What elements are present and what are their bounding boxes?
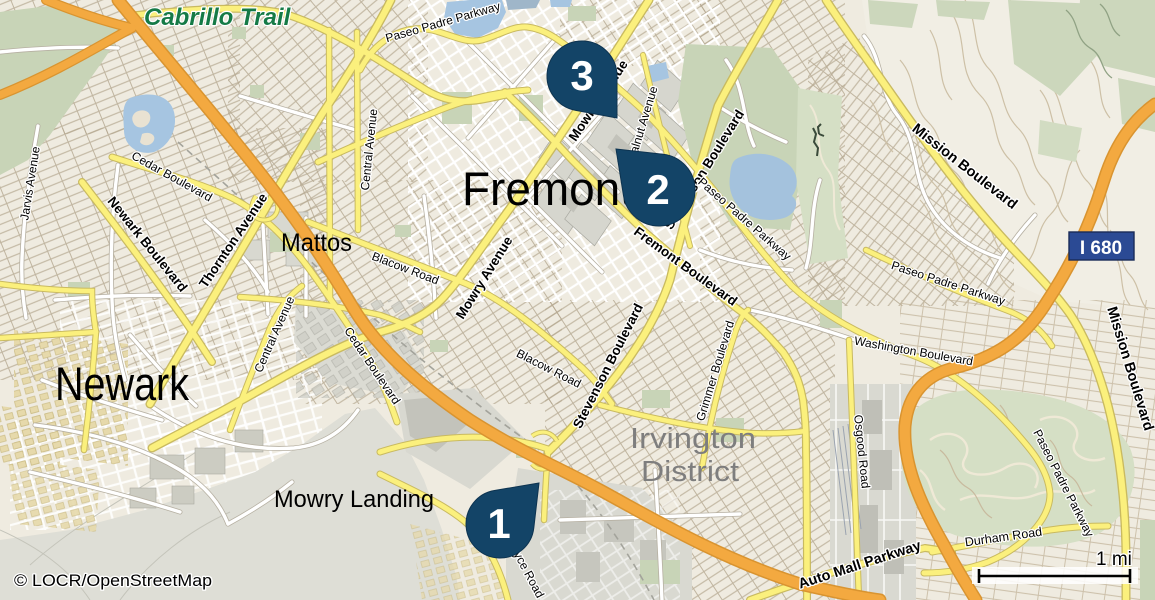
svg-text:Newark: Newark — [55, 357, 189, 410]
svg-text:District: District — [641, 456, 739, 488]
svg-text:Irvington: Irvington — [630, 423, 756, 455]
svg-text:Fremont: Fremont — [462, 162, 633, 215]
svg-text:1: 1 — [487, 500, 510, 547]
svg-text:3: 3 — [570, 52, 593, 99]
svg-text:Mattos: Mattos — [281, 229, 352, 257]
svg-text:I 680: I 680 — [1080, 238, 1122, 259]
svg-text:Mowry Landing: Mowry Landing — [274, 486, 434, 513]
svg-text:Cabrillo Trail: Cabrillo Trail — [144, 4, 292, 31]
svg-text:2: 2 — [646, 166, 669, 213]
svg-text:© LOCR/OpenStreetMap: © LOCR/OpenStreetMap — [14, 571, 212, 590]
svg-text:1 mi: 1 mi — [1096, 549, 1132, 570]
